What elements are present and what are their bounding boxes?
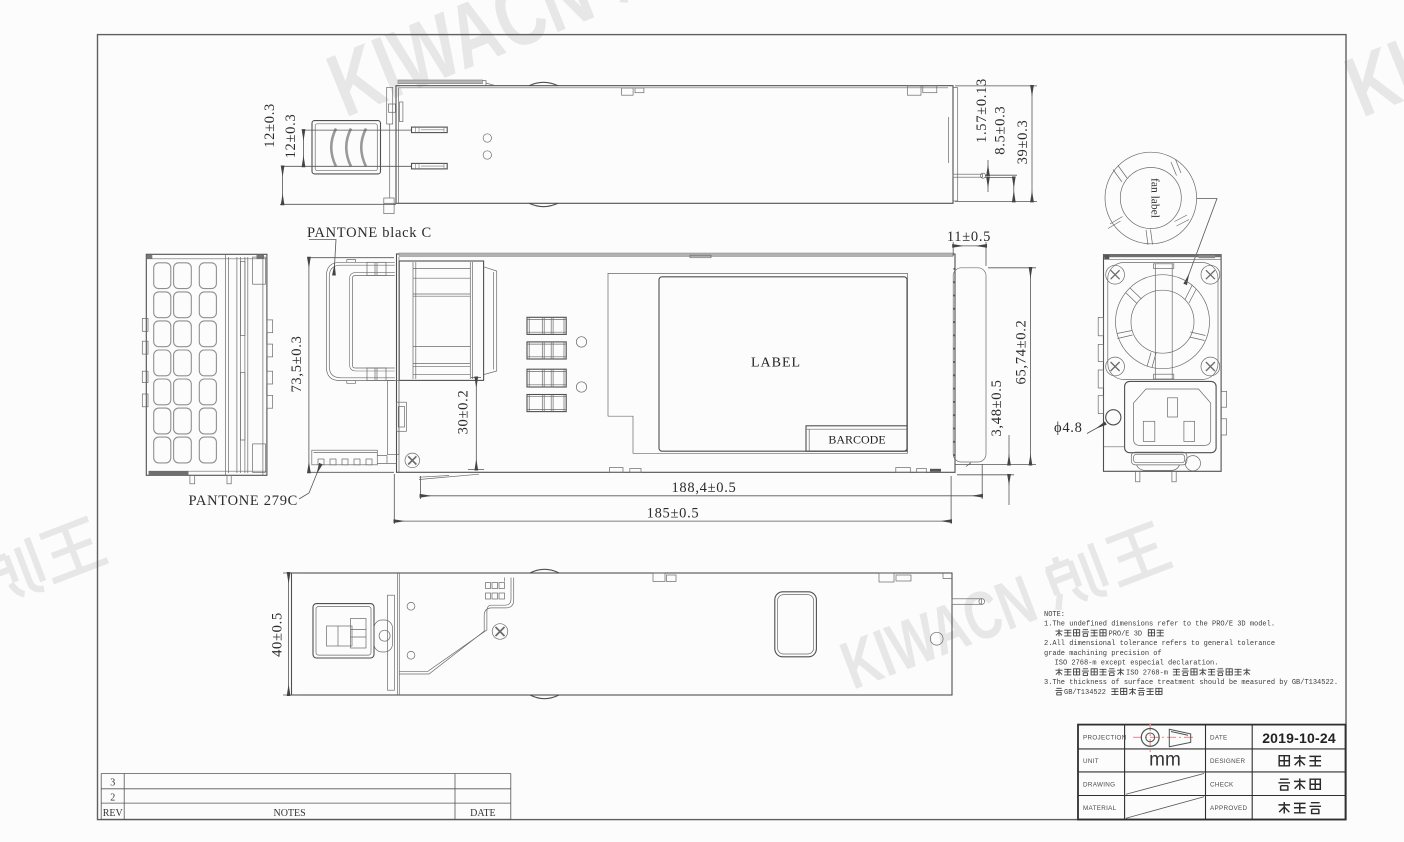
svg-text:ϕ4.8: ϕ4.8 (1054, 420, 1083, 436)
svg-text:PANTONE 279C: PANTONE 279C (189, 493, 299, 509)
svg-text:8.5±0.3: 8.5±0.3 (993, 106, 1009, 155)
svg-text:mm: mm (1149, 750, 1181, 771)
svg-text:12±0.3: 12±0.3 (262, 103, 278, 148)
svg-text:30±0.2: 30±0.2 (456, 390, 472, 435)
svg-text:12±0.3: 12±0.3 (283, 114, 299, 159)
svg-text:APPROVED: APPROVED (1210, 805, 1248, 812)
svg-text:188,4±0.5: 188,4±0.5 (671, 480, 736, 496)
svg-text:UNIT: UNIT (1083, 758, 1099, 765)
svg-text:GB/T134522: GB/T134522 (1064, 689, 1106, 697)
svg-text:2: 2 (110, 793, 115, 804)
svg-text:NOTES: NOTES (273, 808, 305, 819)
svg-text:DRAWING: DRAWING (1083, 782, 1115, 789)
svg-text:3.The thickness of surface tre: 3.The thickness of surface treatment sho… (1044, 679, 1338, 687)
svg-text:DATE: DATE (470, 808, 496, 819)
svg-text:PROJECTION: PROJECTION (1083, 735, 1127, 742)
svg-text:3,48±0.5: 3,48±0.5 (989, 379, 1005, 436)
svg-text:2.All dimensional tolerance re: 2.All dimensional tolerance refers to ge… (1044, 640, 1275, 648)
svg-text:3: 3 (110, 778, 115, 789)
svg-text:73,5±0.3: 73,5±0.3 (289, 335, 305, 392)
svg-text:ISO 2768-m: ISO 2768-m (1126, 670, 1168, 678)
svg-text:DESIGNER: DESIGNER (1210, 758, 1245, 765)
svg-text:65,74±0.2: 65,74±0.2 (1014, 319, 1030, 384)
svg-text:LABEL: LABEL (751, 356, 801, 371)
svg-text:CHECK: CHECK (1210, 782, 1234, 789)
svg-text:DATE: DATE (1210, 735, 1228, 742)
svg-text:1.The undefined dimensions ref: 1.The undefined dimensions refer to the … (1044, 621, 1275, 629)
svg-text:2019-10-24: 2019-10-24 (1262, 730, 1336, 746)
svg-text:NOTE:: NOTE: (1044, 611, 1065, 619)
svg-text:BARCODE: BARCODE (828, 433, 885, 447)
svg-text:grade machining precision of: grade machining precision of (1044, 650, 1162, 658)
svg-text:ISO 2768-m except especial dec: ISO 2768-m except especial declaration. (1055, 660, 1219, 668)
svg-text:REV: REV (103, 808, 124, 819)
svg-text:39±0.3: 39±0.3 (1015, 120, 1031, 165)
svg-text:PANTONE black C: PANTONE black C (307, 225, 432, 241)
svg-text:MATERIAL: MATERIAL (1083, 805, 1117, 812)
svg-text:40±0.5: 40±0.5 (270, 612, 286, 657)
svg-text:PRO/E 3D: PRO/E 3D (1109, 631, 1143, 639)
svg-text:fan label: fan label (1149, 178, 1161, 218)
svg-text:11±0.5: 11±0.5 (947, 229, 991, 245)
svg-text:185±0.5: 185±0.5 (647, 505, 700, 521)
svg-text:1.57±0.13: 1.57±0.13 (974, 78, 990, 143)
